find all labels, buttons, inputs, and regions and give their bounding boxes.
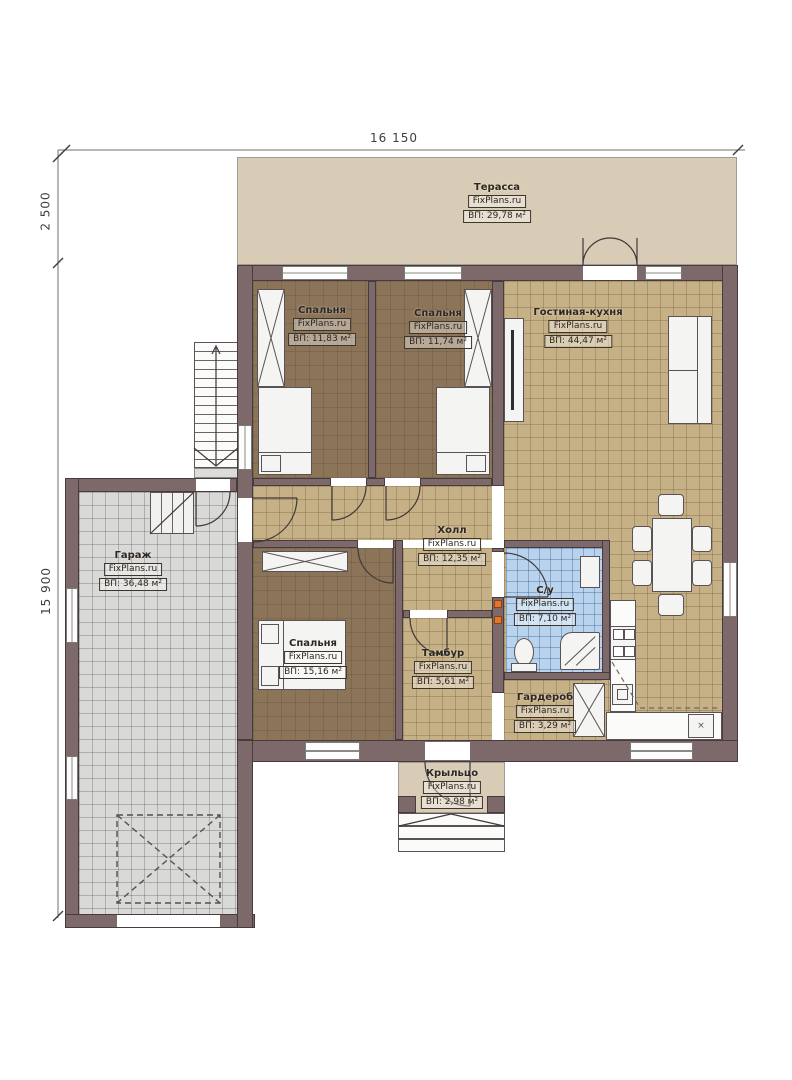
switch — [494, 600, 502, 608]
room-name: Спальня — [279, 638, 347, 649]
stove-burner — [624, 629, 635, 640]
switch — [494, 616, 502, 624]
brand-watermark: FixPlans.ru — [104, 563, 162, 576]
wardrobe-cabinet — [257, 289, 285, 387]
room-name: Тамбур — [412, 648, 474, 659]
bed-line — [436, 452, 490, 453]
garage-door-opening — [117, 915, 220, 927]
shower-tray — [560, 632, 600, 670]
room-label-bathroom: С/у FixPlans.ru ВП: 7,10 м² — [514, 585, 576, 626]
porch-post — [398, 796, 416, 813]
brand-watermark: FixPlans.ru — [423, 781, 481, 794]
bathroom-wall-bottom — [504, 672, 610, 680]
sofa-divider-line — [668, 370, 697, 371]
room-name: Крыльцо — [421, 768, 483, 779]
wall-right — [722, 265, 738, 745]
pillow — [261, 666, 279, 686]
room-label-tambour: Тамбур FixPlans.ru ВП: 5,61 м² — [412, 648, 474, 689]
room-area: ВП: 3,29 м² — [514, 720, 576, 733]
x-brace-icon — [574, 684, 604, 736]
room-name: Спальня — [288, 305, 356, 316]
corridor-wall — [366, 478, 385, 486]
stove-burner — [613, 629, 624, 640]
window — [282, 266, 348, 280]
room-area: ВП: 15,16 м² — [279, 666, 347, 679]
dining-chair — [658, 594, 684, 616]
window — [404, 266, 462, 280]
room-name: Гараж — [99, 550, 167, 561]
dimension-terrace-depth: 2 500 — [39, 191, 53, 230]
dining-table — [652, 518, 692, 592]
bathroom-wall-top — [504, 540, 610, 548]
room-label-bedroom-top-right: Спальня FixPlans.ru ВП: 11,74 м² — [404, 308, 472, 349]
window — [238, 425, 252, 470]
pillow — [261, 624, 279, 644]
tv — [511, 330, 514, 410]
bed-line — [258, 452, 312, 453]
exterior-stair — [194, 342, 238, 468]
brand-watermark: FixPlans.ru — [409, 321, 467, 334]
tambour-wall — [447, 610, 492, 618]
room-label-porch: Крыльцо FixPlans.ru ВП: 2,98 м² — [421, 768, 483, 809]
kitchen-sink-inner — [617, 689, 628, 700]
porch-step — [398, 826, 505, 839]
brand-watermark: FixPlans.ru — [293, 318, 351, 331]
tambour-wall — [403, 610, 410, 618]
room-area: ВП: 29,78 м² — [463, 210, 531, 223]
sofa-backrest-line — [697, 316, 698, 424]
dining-chair — [632, 560, 652, 586]
room-area: ВП: 11,74 м² — [404, 336, 472, 349]
room-name: Гостиная-кухня — [533, 307, 622, 318]
stove-burner — [624, 646, 635, 657]
brand-watermark: FixPlans.ru — [516, 598, 574, 611]
spine-wall — [492, 281, 504, 486]
brand-watermark: FixPlans.ru — [549, 320, 607, 333]
room-name: С/у — [514, 585, 576, 596]
porch-post — [487, 796, 505, 813]
bedroom-divider-wall — [368, 281, 376, 478]
room-area: ВП: 11,83 м² — [288, 333, 356, 346]
window — [305, 742, 360, 760]
stove-burner — [613, 646, 624, 657]
dining-chair — [632, 526, 652, 552]
stove — [610, 626, 636, 660]
room-area: ВП: 5,61 м² — [412, 676, 474, 689]
window — [645, 266, 682, 280]
toilet-tank — [511, 663, 537, 672]
x-brace-icon — [258, 290, 284, 386]
dining-chair — [658, 494, 684, 516]
room-name: Терасса — [463, 182, 531, 193]
room-label-living-kitchen: Гостиная-кухня FixPlans.ru ВП: 44,47 м² — [533, 307, 622, 348]
brand-watermark: FixPlans.ru — [468, 195, 526, 208]
x-brace-icon — [263, 552, 347, 571]
room-area: ВП: 36,48 м² — [99, 578, 167, 591]
pillow — [261, 455, 281, 472]
brand-watermark: FixPlans.ru — [414, 661, 472, 674]
dining-chair — [692, 560, 712, 586]
pillow — [466, 455, 486, 472]
garage-steps — [150, 492, 194, 534]
bedroom-bottom-wall-top — [253, 540, 358, 548]
dimension-height: 15 900 — [39, 567, 53, 615]
brand-watermark: FixPlans.ru — [423, 538, 481, 551]
garage-wall-right — [237, 740, 253, 928]
wardrobe-cabinet — [262, 551, 348, 572]
room-label-terrace: Терасса FixPlans.ru ВП: 29,78 м² — [463, 182, 531, 223]
room-name: Спальня — [404, 308, 472, 319]
brand-watermark: FixPlans.ru — [516, 705, 574, 718]
garage-wall-left — [65, 478, 79, 928]
floor-plan: × — [0, 0, 792, 1080]
room-label-bedroom-top-left: Спальня FixPlans.ru ВП: 11,83 м² — [288, 305, 356, 346]
garage-entry-opening — [238, 498, 252, 542]
front-door-opening — [425, 742, 470, 760]
garage-top-opening — [196, 479, 230, 491]
spine-wall — [492, 548, 504, 552]
tv-stand — [504, 318, 524, 422]
window — [66, 588, 78, 643]
bedroom-bottom-wall-right — [395, 540, 403, 740]
sink-basin: × — [688, 714, 714, 738]
washing-machine — [580, 556, 600, 588]
stair-landing — [194, 468, 238, 478]
toilet-bowl — [514, 638, 534, 666]
spine-wall — [492, 597, 504, 693]
bathroom-wall-right — [602, 540, 610, 680]
corridor-wall — [253, 478, 331, 486]
room-area: ВП: 2,98 м² — [421, 796, 483, 809]
room-name: Холл — [418, 525, 486, 536]
terrace-door-opening — [583, 266, 637, 280]
room-area: ВП: 7,10 м² — [514, 613, 576, 626]
brand-watermark: FixPlans.ru — [284, 651, 342, 664]
room-name: Гардероб — [514, 692, 576, 703]
window — [630, 742, 693, 760]
shower-hatch-icon — [561, 633, 599, 669]
room-label-wardrobe: Гардероб FixPlans.ru ВП: 3,29 м² — [514, 692, 576, 733]
room-label-hall: Холл FixPlans.ru ВП: 12,35 м² — [418, 525, 486, 566]
porch-step — [398, 813, 505, 826]
corridor-wall — [420, 478, 492, 486]
dining-chair — [692, 526, 712, 552]
wardrobe-cabinet — [573, 683, 605, 737]
window — [66, 756, 78, 800]
room-label-bedroom-bottom: Спальня FixPlans.ru ВП: 15,16 м² — [279, 638, 347, 679]
room-label-garage: Гараж FixPlans.ru ВП: 36,48 м² — [99, 550, 167, 591]
porch-step — [398, 839, 505, 852]
window — [723, 562, 737, 617]
room-area: ВП: 44,47 м² — [544, 335, 612, 348]
room-area: ВП: 12,35 м² — [418, 553, 486, 566]
dimension-width: 16 150 — [370, 131, 418, 145]
